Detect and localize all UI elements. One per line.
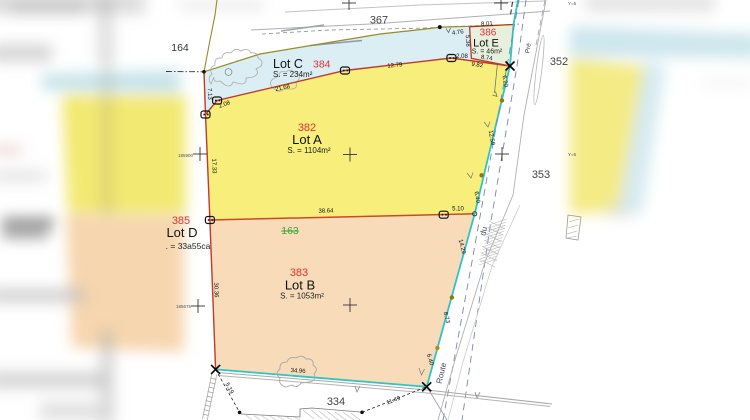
svg-text:185675: 185675 [176,304,192,309]
svg-text:384: 384 [313,59,331,71]
svg-text:. = 33a55ca: . = 33a55ca [166,241,211,251]
svg-text:Lot A: Lot A [292,132,322,147]
svg-text:5.10: 5.10 [452,207,464,213]
svg-text:Lot B: Lot B [285,278,315,293]
svg-text:7.13: 7.13 [206,88,213,101]
svg-text:S. = 46m²: S. = 46m² [472,49,503,56]
svg-text:164: 164 [171,42,189,54]
svg-text:17.33: 17.33 [210,158,217,174]
svg-text:334: 334 [327,396,345,408]
svg-text:S. = 1053m²: S. = 1053m² [280,292,324,301]
svg-text:352: 352 [550,56,568,68]
svg-text:353: 353 [532,169,550,181]
svg-text:163: 163 [281,225,299,237]
svg-text:Lot D: Lot D [166,225,197,240]
svg-text:2.08: 2.08 [456,54,468,60]
svg-text:5.38: 5.38 [464,35,471,48]
svg-text:367: 367 [370,15,388,27]
svg-text:185900: 185900 [178,153,194,158]
svg-text:Y=6: Y=6 [568,1,577,6]
svg-text:Lot C: Lot C [273,57,303,71]
svg-text:Y=6: Y=6 [568,152,577,157]
svg-text:S. = 234m²: S. = 234m² [273,70,313,79]
svg-text:38.64: 38.64 [318,208,334,214]
svg-text:8.01: 8.01 [481,21,494,28]
svg-text:34.96: 34.96 [290,368,306,375]
svg-text:30.36: 30.36 [212,282,219,298]
svg-text:S. = 1104m²: S. = 1104m² [287,146,331,155]
